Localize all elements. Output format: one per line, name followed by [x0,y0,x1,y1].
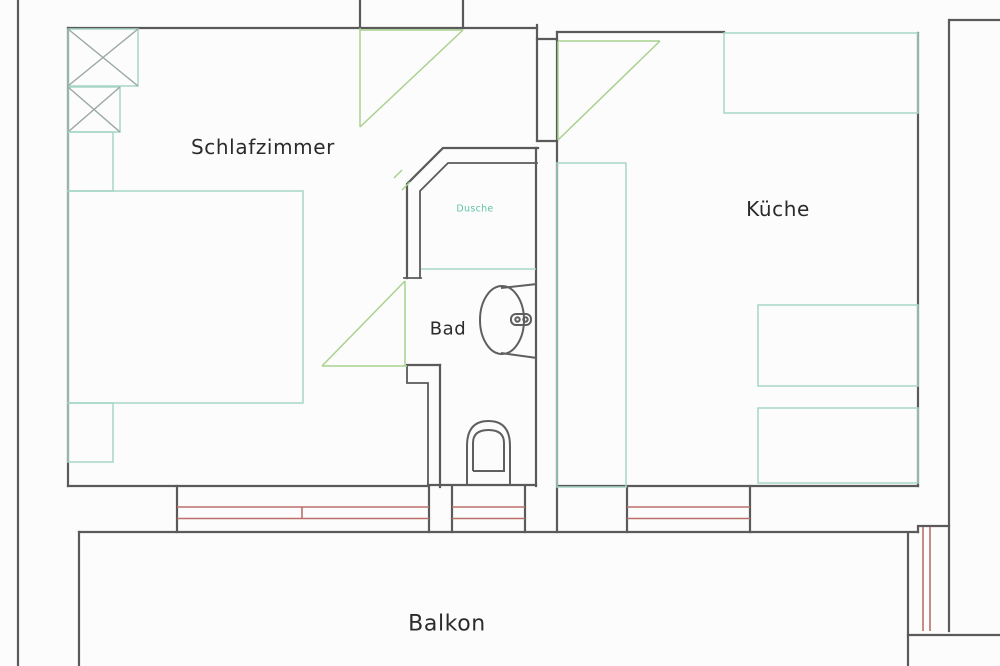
bathroom-label: Bad [430,319,467,340]
exterior-walls [18,0,1000,666]
bathroom-door-swing [322,170,410,366]
kitchen-counter-icon [557,33,918,487]
wardrobe-icon [68,29,138,132]
windows [177,507,930,631]
shower-label: Dusche [456,204,493,215]
sink-icon [480,284,537,358]
balcony-label: Balkon [408,612,486,637]
bedroom-label: Schlafzimmer [191,135,335,159]
toilet-icon [467,421,510,486]
bed-icon [68,132,303,462]
floor-plan-canvas: Schlafzimmer Küche Bad Dusche Balkon [0,0,1000,666]
window-wall-posts [177,486,750,532]
balcony-walls [79,526,1000,666]
kitchen-door-swing [558,41,660,140]
floor-plan-drawing [0,0,1000,666]
kitchen-walls [537,32,918,532]
bedroom-door-swing [360,28,463,127]
kitchen-label: Küche [746,197,810,221]
